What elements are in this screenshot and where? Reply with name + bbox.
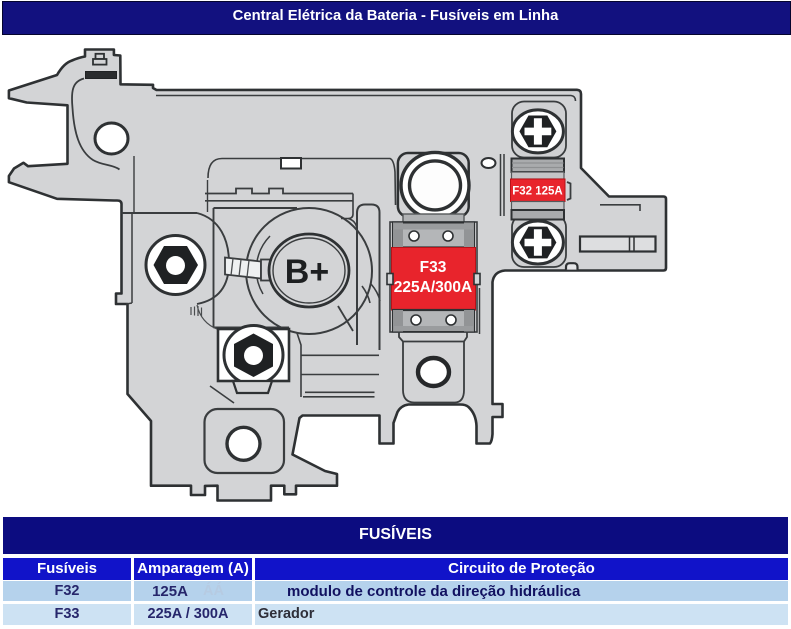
svg-text:B+: B+ [285, 253, 329, 291]
svg-text:F33: F33 [420, 259, 447, 276]
svg-text:225A/300A: 225A/300A [394, 279, 472, 296]
svg-text:F32 125A: F32 125A [512, 186, 563, 198]
